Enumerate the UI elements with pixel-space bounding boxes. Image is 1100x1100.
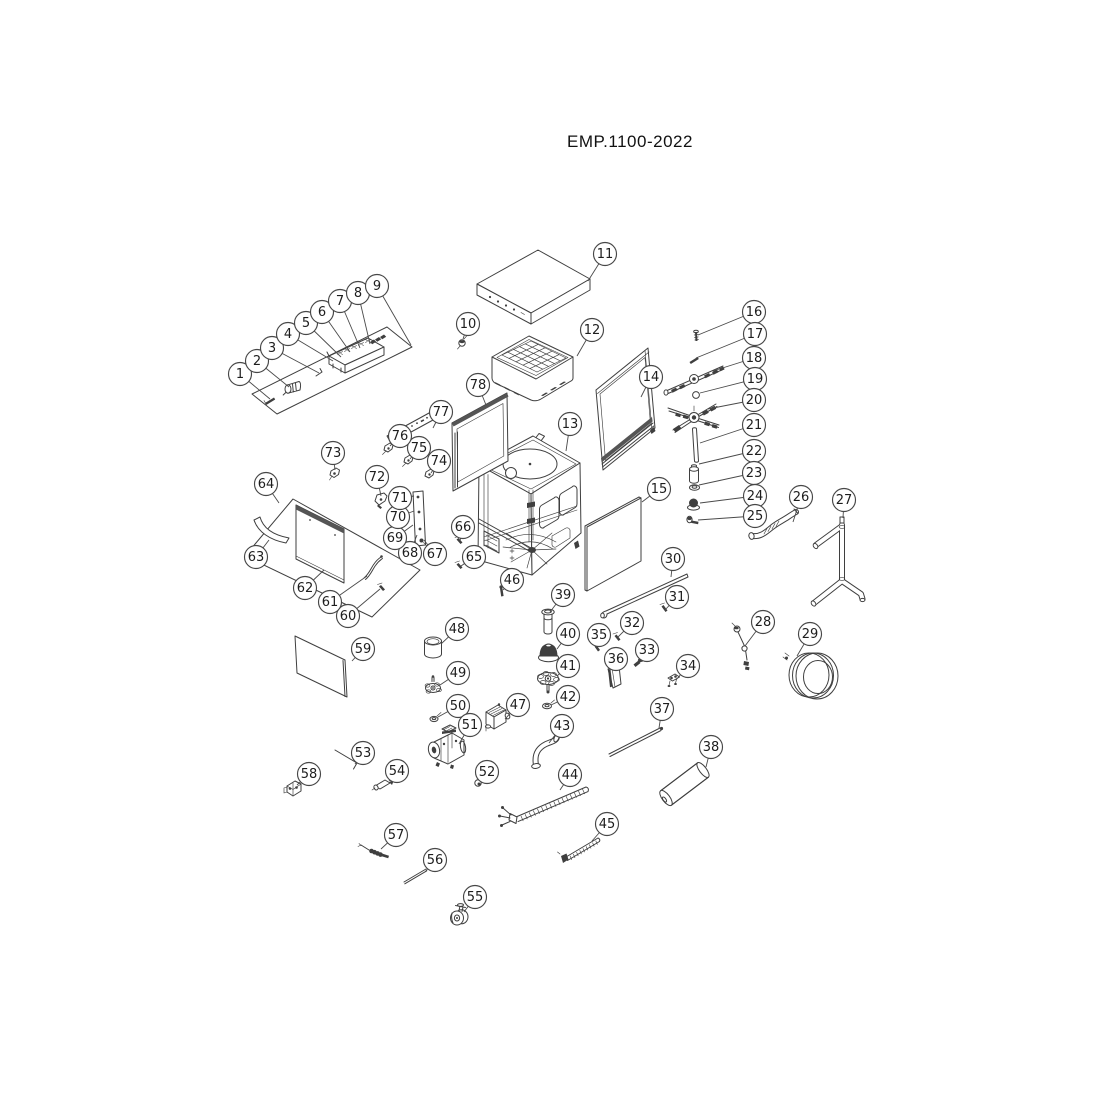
callout-21: 21: [700, 414, 766, 444]
callout-54: 54: [386, 760, 409, 783]
callout-number: 62: [297, 581, 314, 596]
callout-48: 48: [441, 618, 469, 645]
callout-number: 68: [402, 546, 419, 561]
callout-number: 47: [510, 698, 527, 713]
part-screw-65: [455, 561, 463, 569]
callout-number: 70: [390, 510, 407, 525]
callout-72: 72: [366, 466, 389, 497]
callout-number: 17: [747, 327, 764, 342]
callout-45: 45: [592, 813, 619, 842]
callout-28: 28: [745, 611, 775, 647]
callout-57: 57: [381, 824, 408, 850]
callout-27: 27: [833, 489, 856, 519]
part-lid: [477, 250, 590, 324]
callout-number: 28: [755, 615, 772, 630]
callout-10: 10: [457, 313, 480, 340]
callout-64: 64: [255, 473, 280, 504]
callout-number: 31: [669, 590, 686, 605]
callout-number: 53: [355, 746, 372, 761]
callout-number: 57: [388, 828, 405, 843]
callout-71: 71: [389, 487, 415, 510]
callout-number: 12: [584, 323, 601, 338]
callout-number: 59: [355, 642, 372, 657]
callout-65: 65: [461, 546, 486, 569]
callout-number: 56: [427, 853, 444, 868]
callout-13: 13: [559, 413, 582, 452]
callout-11: 11: [588, 243, 617, 282]
callout-31: 31: [665, 586, 689, 611]
callout-number: 34: [680, 659, 697, 674]
callout-41: 41: [557, 655, 580, 678]
callout-23: 23: [699, 462, 766, 486]
callout-number: 20: [746, 393, 763, 408]
part-ball-19: [693, 392, 700, 399]
callout-73: 73: [322, 442, 345, 471]
part-nut-23: [690, 485, 700, 491]
part-dome-40: [539, 644, 559, 662]
callout-number: 44: [562, 768, 579, 783]
exploded-parts-diagram: EMP.1100-2022: [0, 0, 1100, 1100]
callout-number: 21: [746, 418, 763, 433]
callout-43: 43: [549, 715, 574, 744]
callout-number: 30: [665, 552, 682, 567]
callout-50: 50: [438, 695, 470, 718]
callout-number: 24: [747, 489, 764, 504]
callout-number: 35: [591, 628, 608, 643]
part-basket: [492, 336, 573, 401]
callout-number: 75: [411, 441, 428, 456]
part-door-panel-62: [296, 505, 344, 583]
callout-number: 69: [387, 531, 404, 546]
callout-number: 14: [643, 370, 660, 385]
callout-55: 55: [464, 886, 487, 913]
diagram-title: EMP.1100-2022: [567, 132, 693, 151]
callout-35: 35: [588, 624, 611, 648]
callout-number: 52: [479, 765, 496, 780]
part-tube-21: [693, 428, 699, 462]
callout-number: 6: [318, 305, 326, 320]
part-elbow-hose-43: [531, 733, 560, 769]
callout-number: 23: [746, 466, 763, 481]
callout-30: 30: [662, 548, 685, 578]
callout-58: 58: [297, 763, 321, 786]
callout-78: 78: [467, 374, 490, 406]
part-rod-56: [404, 869, 427, 884]
callout-number: 32: [624, 616, 641, 631]
part-linkage-28: [732, 623, 750, 670]
callout-number: 71: [392, 491, 409, 506]
part-screw-16: [694, 330, 699, 341]
callout-number: 27: [836, 493, 853, 508]
part-cup-48: [425, 637, 442, 658]
callout-67: 67: [424, 540, 447, 566]
callout-number: 54: [389, 764, 406, 779]
callout-34: 34: [676, 655, 700, 681]
part-hinge-bracket: [413, 491, 427, 546]
callout-number: 29: [802, 627, 819, 642]
part-switch: [283, 382, 300, 396]
callout-62: 62: [294, 570, 325, 600]
part-fitting-25: [687, 516, 699, 524]
callout-number: 3: [268, 341, 276, 356]
callout-number: 40: [560, 627, 577, 642]
callout-number: 50: [450, 699, 467, 714]
callout-number: 67: [427, 547, 444, 562]
callout-20: 20: [708, 389, 766, 412]
part-panel-59: [295, 636, 347, 697]
part-clip-73: [330, 468, 340, 480]
callout-number: 46: [504, 573, 521, 588]
callout-42: 42: [551, 686, 580, 709]
callout-number: 2: [253, 354, 261, 369]
callout-number: 5: [302, 316, 310, 331]
callout-59: 59: [352, 638, 375, 662]
callout-25: 25: [698, 505, 767, 528]
callout-number: 18: [746, 351, 763, 366]
exploded-parts-diagram-page: EMP.1100-2022: [0, 0, 1100, 1100]
callout-number: 58: [301, 767, 318, 782]
part-pipe-stand-27: [810, 517, 865, 607]
callout-number: 72: [369, 470, 386, 485]
callout-number: 26: [793, 490, 810, 505]
callout-number: 38: [703, 740, 720, 755]
part-clip-10: [458, 336, 468, 350]
part-rod-45: [558, 838, 600, 863]
part-cap-24: [688, 499, 700, 511]
callout-37: 37: [651, 698, 674, 729]
callout-number: 1: [236, 367, 244, 382]
part-coiled-hose-29: [783, 653, 838, 699]
callout-number: 9: [373, 279, 381, 294]
callout-49: 49: [440, 662, 470, 686]
callout-77: 77: [430, 401, 453, 429]
part-side-panel-15: [585, 497, 641, 591]
part-ring-50: [430, 713, 441, 722]
part-standpipe-39: [542, 609, 554, 634]
callout-12: 12: [577, 319, 604, 357]
callout-number: 10: [460, 317, 477, 332]
callout-number: 41: [560, 659, 577, 674]
callout-60: 60: [337, 589, 381, 628]
callout-number: 7: [336, 294, 344, 309]
callout-number: 61: [322, 595, 339, 610]
callout-number: 66: [455, 520, 472, 535]
part-impeller-49: [425, 675, 441, 693]
callout-number: 45: [599, 817, 616, 832]
callout-40: 40: [557, 623, 580, 650]
callout-22: 22: [699, 440, 766, 465]
callout-36: 36: [605, 648, 628, 672]
callout-number: 43: [554, 719, 571, 734]
callout-number: 8: [354, 286, 362, 301]
callout-number: 42: [560, 690, 577, 705]
callout-number: 49: [450, 666, 467, 681]
callout-number: 13: [562, 417, 579, 432]
callout-53: 53: [352, 742, 375, 765]
callout-number: 78: [470, 378, 487, 393]
callout-number: 55: [467, 890, 484, 905]
callout-number: 63: [248, 550, 265, 565]
callout-number: 48: [449, 622, 466, 637]
callout-number: 11: [597, 247, 614, 262]
part-impeller-41: [538, 672, 560, 694]
part-screw-32: [613, 633, 621, 642]
part-heating-element-44: [498, 787, 588, 827]
part-bracket-34: [668, 674, 680, 687]
part-rod-37: [609, 727, 663, 757]
part-nozzle-54: [372, 780, 394, 791]
callout-number: 60: [340, 609, 357, 624]
callout-number: 39: [555, 588, 572, 603]
callout-38: 38: [700, 736, 723, 768]
callout-number: 33: [639, 643, 656, 658]
callout-number: 19: [747, 372, 764, 387]
part-screw-31: [660, 603, 668, 612]
callout-74: 74: [428, 450, 451, 474]
callout-number: 37: [654, 702, 671, 717]
part-cylinder-22: [690, 465, 699, 483]
callout-number: 74: [431, 454, 448, 469]
callout-46: 46: [501, 569, 524, 592]
callout-number: 15: [651, 482, 668, 497]
callout-number: 77: [433, 405, 450, 420]
callout-number: 16: [746, 305, 763, 320]
part-caster-55: [451, 904, 469, 925]
callout-15: 15: [642, 478, 671, 503]
callout-44: 44: [559, 764, 582, 791]
callout-number: 73: [325, 446, 342, 461]
callout-number: 65: [466, 550, 483, 565]
callout-51: 51: [459, 714, 482, 745]
callout-number: 51: [462, 718, 479, 733]
callout-number: 36: [608, 652, 625, 667]
callout-number: 25: [747, 509, 764, 524]
callout-52: 52: [476, 761, 499, 784]
part-pin-17: [690, 357, 699, 364]
callout-33: 33: [636, 639, 659, 662]
callout-number: 22: [746, 444, 763, 459]
callout-number: 4: [284, 327, 292, 342]
callout-76: 76: [389, 425, 412, 448]
callout-63: 63: [245, 540, 270, 569]
callout-39: 39: [550, 584, 575, 613]
callout-47: 47: [505, 694, 530, 720]
part-roller-38: [658, 761, 712, 808]
callout-56: 56: [424, 849, 447, 873]
callout-32: 32: [618, 612, 644, 638]
callout-number: 64: [258, 477, 275, 492]
callout-number: 76: [392, 429, 409, 444]
callout-29: 29: [797, 623, 822, 657]
